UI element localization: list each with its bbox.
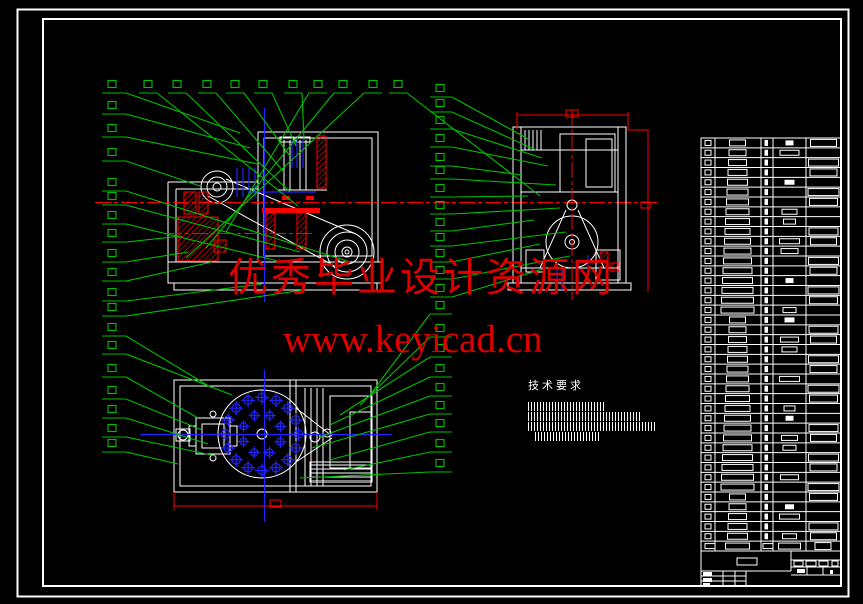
technical-requirements-title: 技术要求 (528, 377, 668, 393)
balloon-callout (394, 81, 402, 88)
balloon-callout (108, 324, 116, 331)
table-row (705, 257, 839, 264)
balloon-callout (108, 149, 116, 156)
table-row (705, 454, 839, 461)
table-row (705, 434, 837, 441)
balloon-callout (108, 440, 116, 447)
illegible-text-line (528, 412, 640, 421)
table-row (705, 346, 797, 352)
parts-table (701, 138, 841, 551)
watermark-site-name: 优秀毕业设计资源网 (228, 245, 615, 303)
table-row (705, 139, 837, 146)
table-row (705, 376, 800, 382)
table-row (705, 543, 831, 550)
plan-view (140, 370, 392, 522)
balloon-callout (203, 81, 211, 88)
balloon-callout (259, 81, 267, 88)
balloon-callout (108, 425, 116, 432)
balloon-callout (108, 230, 116, 237)
table-row (705, 219, 796, 225)
technical-requirements-block: 技术要求 (528, 377, 668, 441)
table-row (705, 287, 839, 294)
table-row (705, 198, 838, 205)
watermark-site-url: www.keyicad.cn (283, 317, 543, 362)
table-row (705, 307, 796, 313)
balloon-callout (108, 406, 116, 413)
balloon-callout (436, 154, 444, 161)
balloon-callout (108, 102, 116, 109)
balloon-callout (436, 219, 444, 226)
table-row (705, 228, 838, 235)
balloon-callout (436, 167, 444, 174)
table-row (705, 356, 839, 363)
balloon-callout (108, 250, 116, 257)
balloon-callout (369, 81, 377, 88)
balloon-callout (436, 185, 444, 192)
balloon-callout (144, 81, 152, 88)
balloon-callout (436, 420, 444, 427)
illegible-text-line (535, 432, 601, 441)
balloon-callout (108, 212, 116, 219)
balloon-callout (436, 440, 444, 447)
table-row (705, 474, 799, 480)
table-row (705, 317, 795, 323)
table-row (705, 425, 838, 432)
balloon-callout (108, 179, 116, 186)
table-row (705, 238, 837, 245)
table-row (705, 326, 838, 333)
balloon-callout (314, 81, 322, 88)
balloon-callout (289, 81, 297, 88)
balloon-callout (436, 117, 444, 124)
balloon-callout (108, 304, 116, 311)
balloon-callout (108, 125, 116, 132)
table-row (705, 278, 794, 284)
table-row (705, 415, 794, 421)
balloon-callout (436, 100, 444, 107)
table-row (705, 385, 839, 392)
table-row (705, 159, 839, 166)
table-row (705, 336, 837, 343)
title-block (701, 551, 841, 586)
table-row (705, 405, 795, 411)
balloon-callout (436, 460, 444, 467)
balloon-callout (436, 135, 444, 142)
balloon-callout (108, 193, 116, 200)
table-row (705, 523, 838, 530)
balloon-callout (231, 81, 239, 88)
balloon-callout (436, 365, 444, 372)
table-row (705, 493, 838, 500)
balloon-callout (436, 384, 444, 391)
balloon-callout (108, 387, 116, 394)
table-row (705, 189, 839, 196)
balloon-callout (108, 269, 116, 276)
table-row (705, 514, 800, 520)
table-row (705, 179, 795, 185)
table-row (705, 445, 796, 451)
table-row (705, 484, 839, 491)
balloon-callout (436, 402, 444, 409)
illegible-text-line (528, 422, 656, 431)
table-row (705, 248, 798, 254)
balloon-callout (108, 81, 116, 88)
table-row (705, 169, 837, 176)
table-row (705, 267, 837, 274)
table-row (705, 533, 837, 540)
table-row (705, 209, 797, 215)
table-row (705, 297, 838, 304)
table-row (705, 464, 837, 471)
balloon-callout (108, 289, 116, 296)
balloon-callout (436, 85, 444, 92)
table-row (705, 150, 799, 156)
table-row (705, 366, 837, 373)
balloon-callout (108, 342, 116, 349)
balloon-callout (339, 81, 347, 88)
illegible-text-line (528, 402, 606, 411)
balloon-callout (436, 234, 444, 241)
balloon-callout (173, 81, 181, 88)
table-row (705, 395, 838, 402)
balloon-callout (108, 365, 116, 372)
cad-drawing-canvas: 优秀毕业设计资源网 www.keyicad.cn 技术要求 (0, 0, 863, 604)
table-row (705, 504, 794, 510)
